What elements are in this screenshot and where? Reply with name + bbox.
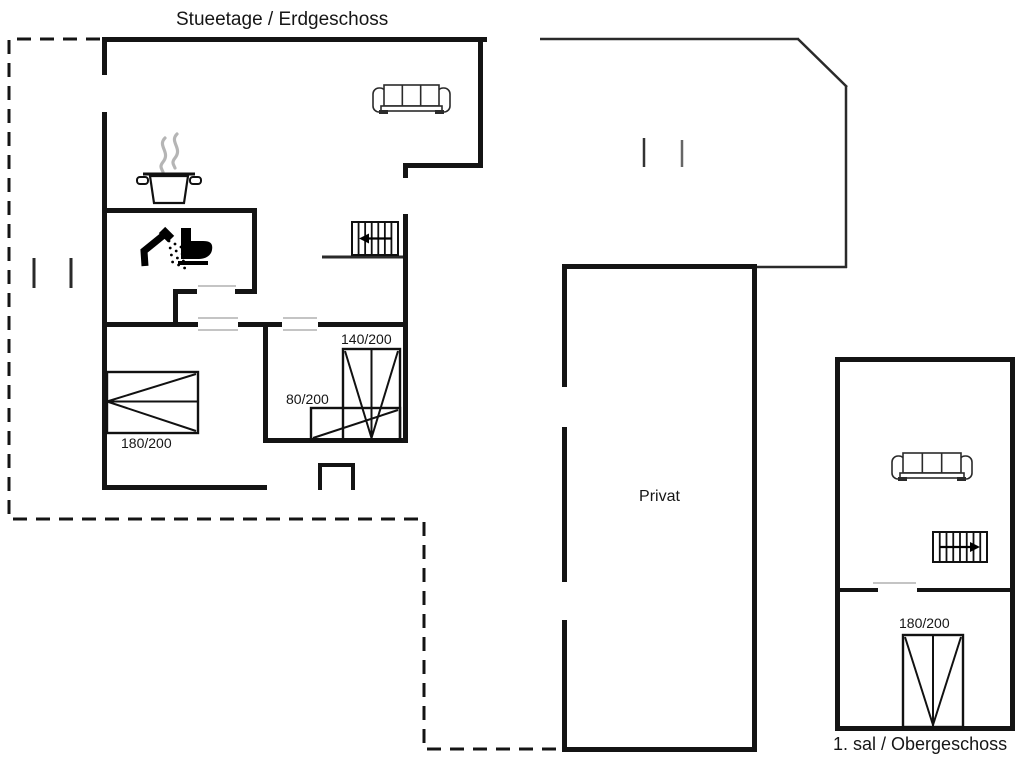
sofa-upper-floor: [892, 453, 972, 481]
bed-size-label-180-ground: 180/200: [121, 435, 172, 451]
bed-size-label-180-upper: 180/200: [899, 615, 950, 631]
floor-label-ground: Stueetage / Erdgeschoss: [176, 9, 388, 31]
floorplan-svg: [0, 0, 1024, 768]
door-openings: [198, 286, 916, 583]
bed-size-label-140: 140/200: [341, 331, 392, 347]
walls: [102, 37, 1015, 752]
room-label-privat: Privat: [562, 488, 757, 506]
stairs-ground: [352, 222, 398, 255]
floor-label-upper: 1. sal / Obergeschoss: [833, 734, 1007, 755]
toilet-icon: [178, 228, 212, 265]
floorplan: Stueetage / Erdgeschoss Privat 180/200 1…: [0, 0, 1024, 768]
sofa-living-room: [373, 85, 450, 114]
stairs-upper: [933, 532, 987, 562]
bed-180x200-ground: [107, 372, 198, 433]
bed-180x200-upper: [903, 635, 963, 727]
stove-pot-icon: [137, 134, 201, 203]
bed-size-label-80: 80/200: [286, 391, 329, 407]
bed-80x200: [311, 408, 400, 440]
